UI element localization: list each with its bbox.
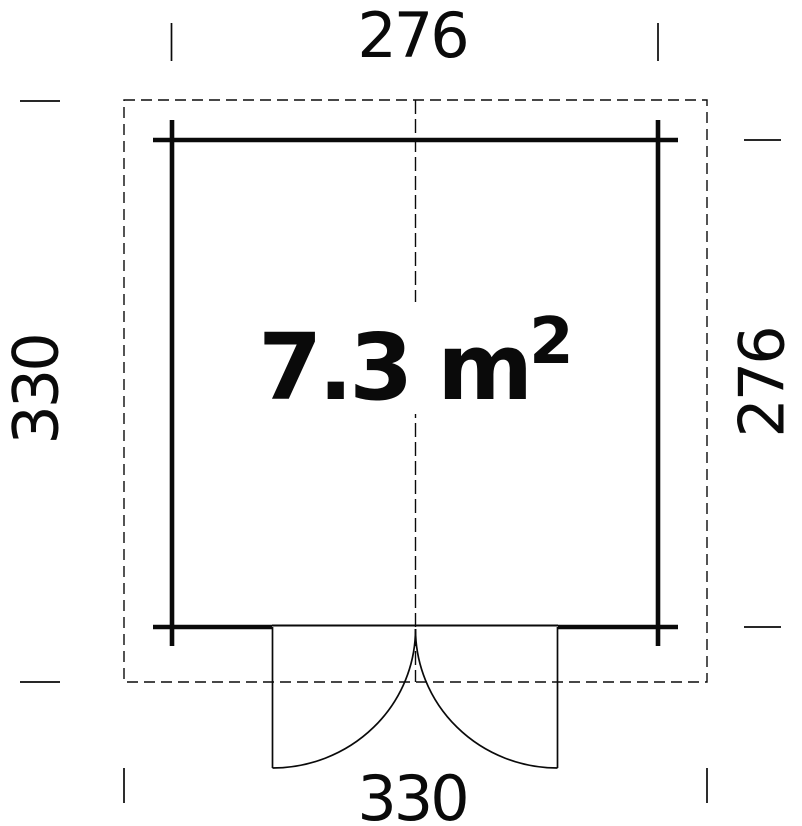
dimension-top: 276 [172,0,659,72]
area-label-value: 7.3 m [258,314,529,421]
dimension-label-right: 276 [726,328,799,437]
dimension-left: 330 [0,101,73,682]
dimension-label-bottom: 330 [357,762,466,826]
door-swing-arc-right [416,629,558,768]
door-swing-arc-left [273,629,416,768]
dimension-label-left: 330 [0,335,73,444]
area-label-exponent: 2 [529,305,570,379]
dimension-right: 276 [726,140,799,627]
area-label: 7.3 m2 [258,305,569,421]
double-door [272,626,558,769]
floor-plan-canvas: 276 330 276 330 7.3 m2 [0,0,802,826]
dimension-bottom: 330 [124,762,707,826]
dimension-label-top: 276 [357,0,466,72]
floor-plan-diagram: 276 330 276 330 7.3 m2 [0,0,802,826]
